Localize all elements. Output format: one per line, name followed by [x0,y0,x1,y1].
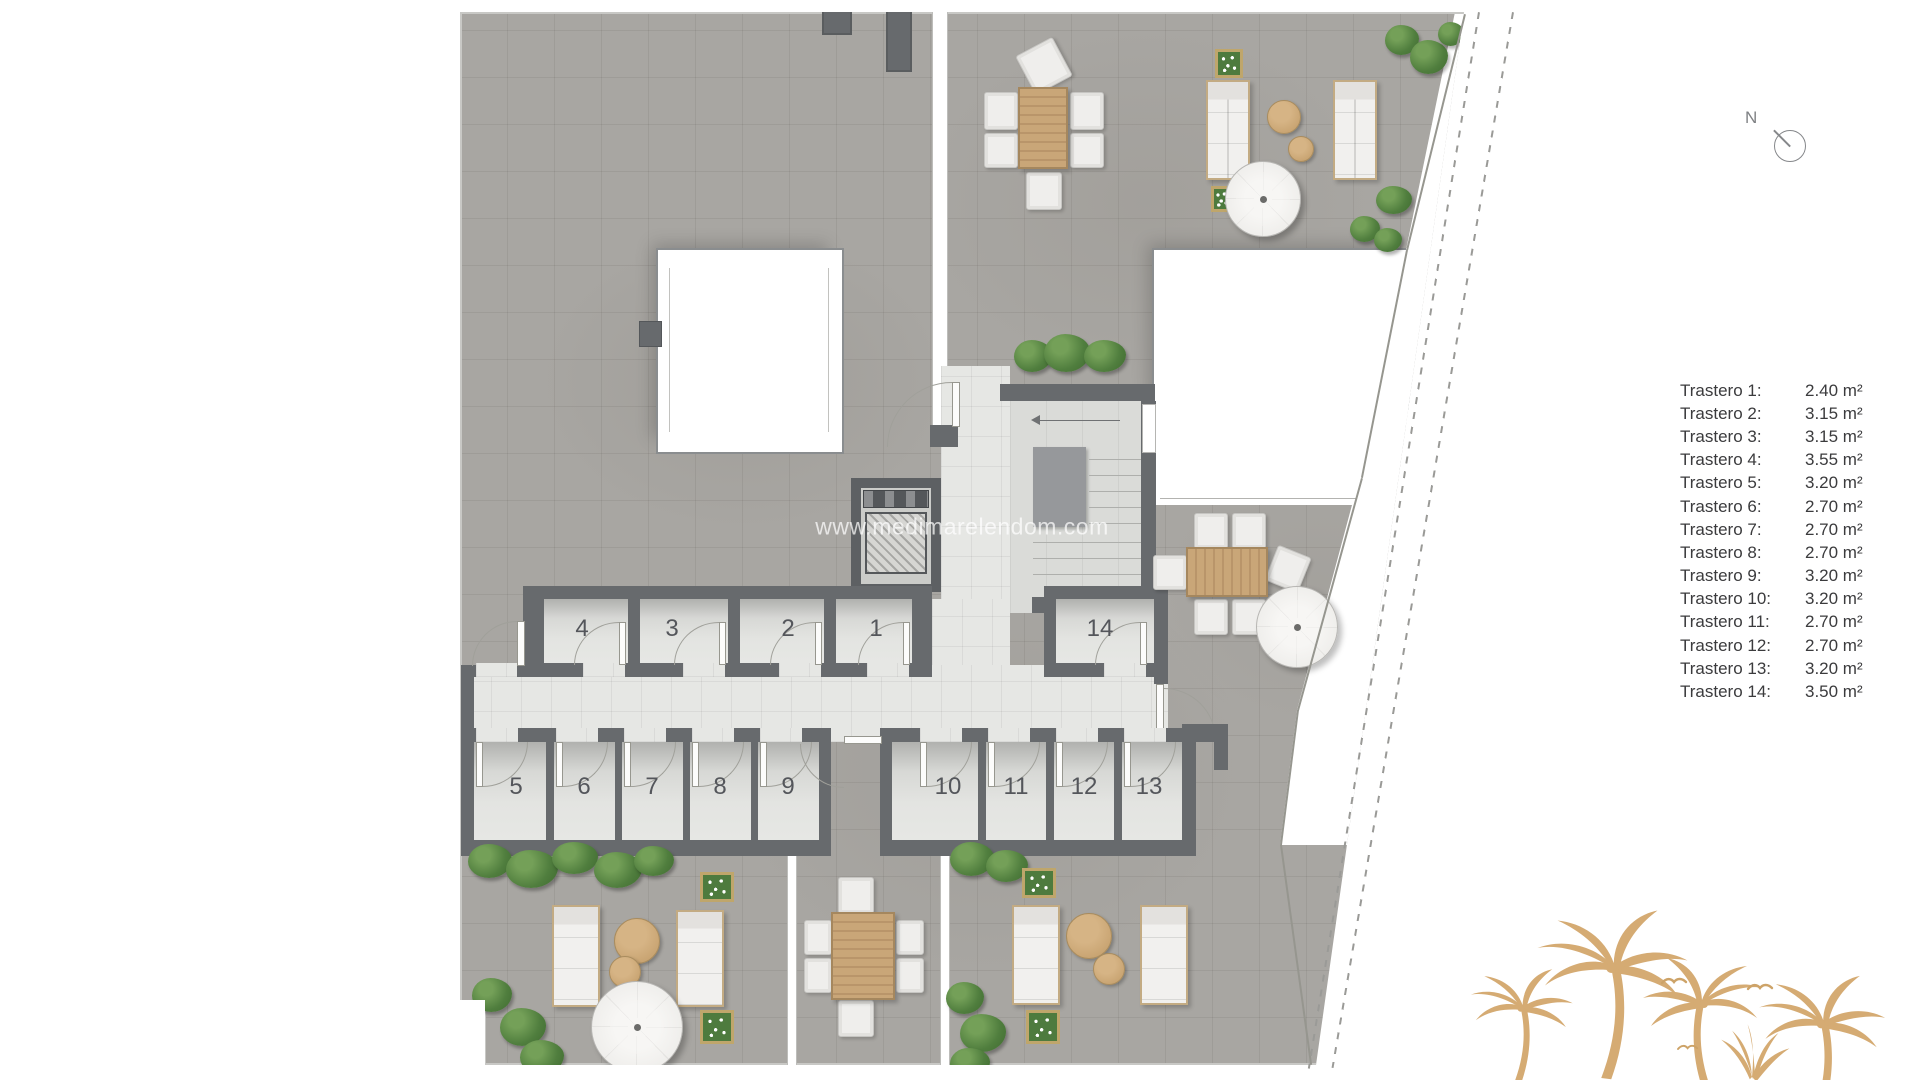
roof-room-left [656,248,844,454]
legend-label: Trastero 8: [1680,543,1805,563]
dining-chair [896,958,924,993]
unit-separator [824,599,836,663]
plan-edge-top [460,12,1464,14]
storage-top-wall [523,586,932,599]
stair-step [1089,491,1141,492]
door-opening [583,663,625,677]
door-opening [476,728,518,742]
roof-room-right [1152,248,1410,469]
dining-table [1186,547,1268,597]
dining-chair [1194,599,1228,635]
legend-label: Trastero 1: [1680,381,1805,401]
legend-label: Trastero 7: [1680,520,1805,540]
unit-7-door [624,742,631,787]
flower-planter [1026,1010,1060,1044]
unit-3-door [719,622,726,665]
legend-area: 3.20 m² [1805,473,1863,493]
unit-separator [683,742,690,840]
unit-9-door [760,742,767,787]
passage-door [844,736,882,744]
sun-lounger [676,910,724,1007]
legend-row: Trastero 11:2.70 m² [1680,611,1910,634]
dining-chair [1232,513,1266,549]
unit-number-3: 3 [665,615,678,643]
unit-number-1: 1 [869,615,882,643]
unit-number-5: 5 [509,773,522,801]
door-opening [867,663,909,677]
unit-1-door [903,622,910,665]
corridor-right-jamb [1154,665,1168,684]
unit-number-4: 4 [575,615,588,643]
legend-label: Trastero 5: [1680,473,1805,493]
dining-table [831,912,895,1000]
stair-direction-arrow [1040,420,1120,421]
stair-step [1033,574,1141,575]
parasol [1256,586,1338,668]
legend-row: Trastero 6:2.70 m² [1680,495,1910,518]
unit-number-7: 7 [645,773,658,801]
dining-chair [804,920,832,955]
dining-chair [984,133,1018,168]
unit-separator [628,599,640,663]
flower-planter [1022,868,1056,898]
door-opening [920,728,962,742]
legend-area: 3.20 m² [1805,566,1863,586]
dining-chair [984,92,1018,130]
unit-6-door [556,742,563,787]
unit-separator [751,742,758,840]
dining-chair [804,958,832,993]
unit-number-10: 10 [935,773,962,801]
separator-wall-bottom-right [941,845,949,1065]
legend-row: Trastero 2:3.15 m² [1680,402,1910,425]
stair-wall-top [1000,384,1155,401]
white-strip-below-room [1156,467,1406,505]
side-table [1267,100,1301,134]
unit-number-14: 14 [1087,615,1114,643]
storage-legend: Trastero 1:2.40 m² Trastero 2:3.15 m² Tr… [1680,379,1910,704]
legend-row: Trastero 12:2.70 m² [1680,634,1910,657]
legend-row: Trastero 7:2.70 m² [1680,518,1910,541]
legend-label: Trastero 3: [1680,427,1805,447]
unit-5-door [476,742,483,787]
unit-number-6: 6 [577,773,590,801]
door-opening [692,728,734,742]
legend-area: 2.70 m² [1805,497,1863,517]
legend-area: 3.20 m² [1805,659,1863,679]
corridor-entry-door [517,621,525,666]
door-opening [988,728,1030,742]
dining-chair [1070,133,1104,168]
door-opening [683,663,725,677]
unit-8-door [692,742,699,787]
parasol [591,981,683,1073]
stair-step [1033,542,1141,543]
unit-number-8: 8 [713,773,726,801]
unit-number-9: 9 [781,773,794,801]
door-opening [1124,728,1166,742]
unit-13-door [1124,742,1131,787]
legend-row: Trastero 14:3.50 m² [1680,680,1910,703]
unit-number-12: 12 [1071,773,1098,801]
unit-separator [728,599,740,663]
dining-chair [896,920,924,955]
palm-decoration [1400,905,1920,1080]
unit-separator [1046,742,1054,840]
storage-bottom-bottom-wall-right [880,840,1196,856]
sun-lounger-pair [1333,80,1377,180]
legend-area: 3.20 m² [1805,589,1863,609]
legend-row: Trastero 8:2.70 m² [1680,541,1910,564]
storage-bottom-left-wall [461,728,474,856]
legend-area: 3.50 m² [1805,682,1863,702]
unit-number-11: 11 [1004,773,1029,801]
legend-area: 3.15 m² [1805,427,1863,447]
legend-label: Trastero 14: [1680,682,1805,702]
legend-area: 3.55 m² [1805,450,1863,470]
side-table [1093,953,1125,985]
legend-label: Trastero 10: [1680,589,1805,609]
door-opening [779,663,821,677]
door-opening [624,728,666,742]
flower-planter [1215,49,1243,78]
legend-area: 2.70 m² [1805,543,1863,563]
unit-2-door [815,622,822,665]
sun-lounger [1140,905,1188,1005]
sun-lounger [1012,905,1060,1005]
hall-door-leaf [952,382,960,427]
bush [520,1040,564,1074]
legend-label: Trastero 4: [1680,450,1805,470]
elevator-mechanism [863,490,929,508]
room-left-inner-line-a [669,268,670,432]
legend-label: Trastero 12: [1680,636,1805,656]
chimney-block-1 [824,8,850,33]
dining-table [1018,87,1068,169]
white-strip-edge-line [1160,498,1356,499]
flower-planter [700,872,734,902]
stair-door-gap [1143,405,1155,452]
legend-label: Trastero 6: [1680,497,1805,517]
door-opening [1056,728,1098,742]
legend-area: 2.70 m² [1805,636,1863,656]
outer-step-wall-v [1214,742,1228,770]
legend-row: Trastero 9:3.20 m² [1680,565,1910,588]
bush [950,1048,990,1078]
block-b-right-wall [1182,742,1196,856]
legend-label: Trastero 13: [1680,659,1805,679]
legend-row: Trastero 5:3.20 m² [1680,472,1910,495]
dining-chair [1070,92,1104,130]
legend-row: Trastero 1:2.40 m² [1680,379,1910,402]
legend-label: Trastero 9: [1680,566,1805,586]
stair-step [1089,459,1141,460]
side-table [1288,136,1314,162]
legend-row: Trastero 4:3.55 m² [1680,449,1910,472]
door-opening [1104,663,1146,677]
unit-number-13: 13 [1136,773,1163,801]
room-left-inner-line-b [828,268,829,432]
plan-edge-notch-h [460,1000,486,1002]
unit-separator [615,742,622,840]
outer-step-wall-h [1182,724,1228,742]
unit-4-door [619,622,626,665]
unit-separator [1114,742,1122,840]
legend-area: 2.70 m² [1805,612,1863,632]
legend-row: Trastero 3:3.15 m² [1680,425,1910,448]
unit-separator [978,742,986,840]
unit-10-door [920,742,927,787]
dining-chair [838,877,874,914]
unit-14-door [1140,622,1147,665]
unit-separator [546,742,554,840]
legend-area: 2.40 m² [1805,381,1863,401]
legend-row: Trastero 13:3.20 m² [1680,657,1910,680]
dining-chair [1026,172,1062,210]
stair-step [1089,475,1141,476]
legend-area: 2.70 m² [1805,520,1863,540]
room-left-wall-block [640,322,661,346]
block-b-left-wall [880,728,892,856]
unit-14-wall-top [1044,586,1168,599]
stair-step [1089,507,1141,508]
sun-lounger [552,905,600,1007]
dining-chair [1153,555,1187,590]
unit-12-door [1056,742,1063,787]
dining-chair [1194,513,1228,549]
parasol [1225,161,1301,237]
dining-chair [838,1000,874,1037]
chimney-block-2 [888,9,910,70]
separator-wall-bottom-left [788,845,796,1065]
legend-row: Trastero 10:3.20 m² [1680,588,1910,611]
flower-planter [700,1010,734,1044]
stair-step [1033,558,1141,559]
separator-wall-top [933,12,947,425]
unit-number-2: 2 [781,615,794,643]
legend-label: Trastero 11: [1680,612,1805,632]
door-opening [556,728,598,742]
legend-label: Trastero 2: [1680,404,1805,424]
side-table [1066,913,1112,959]
legend-area: 3.15 m² [1805,404,1863,424]
watermark: www.medimarelendom.com [815,514,1108,541]
compass-north-label: N [1745,108,1757,128]
door-opening [760,728,802,742]
stair-arrow-head [1031,415,1040,425]
unit-11-door [988,742,995,787]
